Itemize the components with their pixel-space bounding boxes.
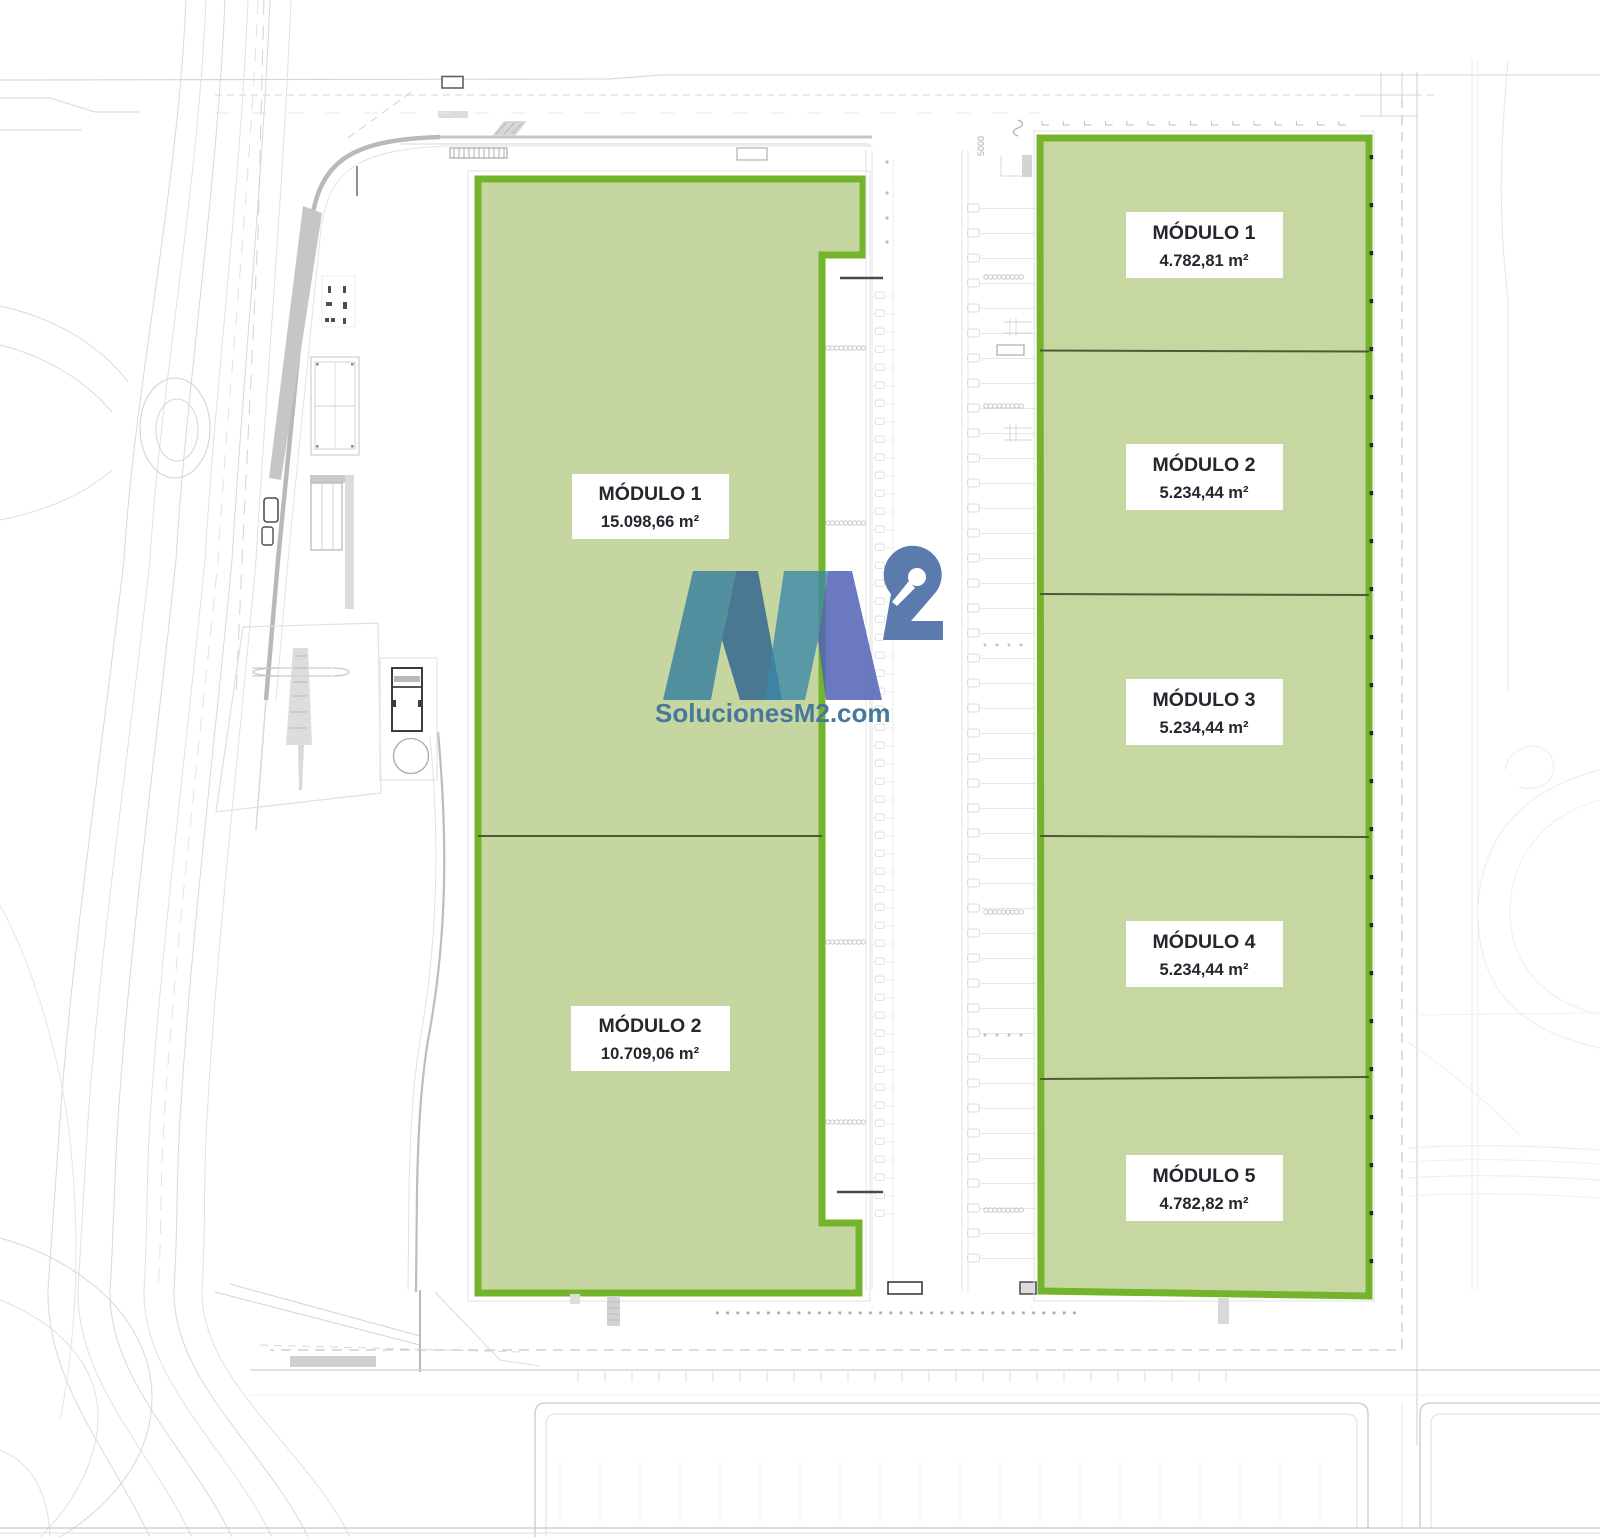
svg-text:MÓDULO 4: MÓDULO 4: [1153, 929, 1256, 953]
svg-text:4.782,82 m²: 4.782,82 m²: [1160, 1195, 1249, 1213]
svg-text:5.234,44 m²: 5.234,44 m²: [1160, 719, 1249, 737]
svg-text:MÓDULO 2: MÓDULO 2: [599, 1013, 702, 1037]
svg-text:5000: 5000: [976, 136, 986, 156]
svg-text:MÓDULO 2: MÓDULO 2: [1153, 452, 1256, 476]
svg-text:10.709,06 m²: 10.709,06 m²: [601, 1045, 700, 1063]
svg-text:15.098,66 m²: 15.098,66 m²: [601, 513, 700, 531]
svg-text:5.234,44 m²: 5.234,44 m²: [1160, 961, 1249, 979]
svg-text:MÓDULO 1: MÓDULO 1: [1153, 220, 1256, 244]
svg-text:MÓDULO 5: MÓDULO 5: [1153, 1163, 1256, 1187]
svg-text:4.782,81 m²: 4.782,81 m²: [1160, 252, 1249, 270]
svg-text:SolucionesM2.com: SolucionesM2.com: [655, 698, 891, 728]
svg-text:5.234,44 m²: 5.234,44 m²: [1160, 484, 1249, 502]
svg-text:MÓDULO 3: MÓDULO 3: [1153, 687, 1256, 711]
svg-text:MÓDULO 1: MÓDULO 1: [599, 481, 702, 505]
